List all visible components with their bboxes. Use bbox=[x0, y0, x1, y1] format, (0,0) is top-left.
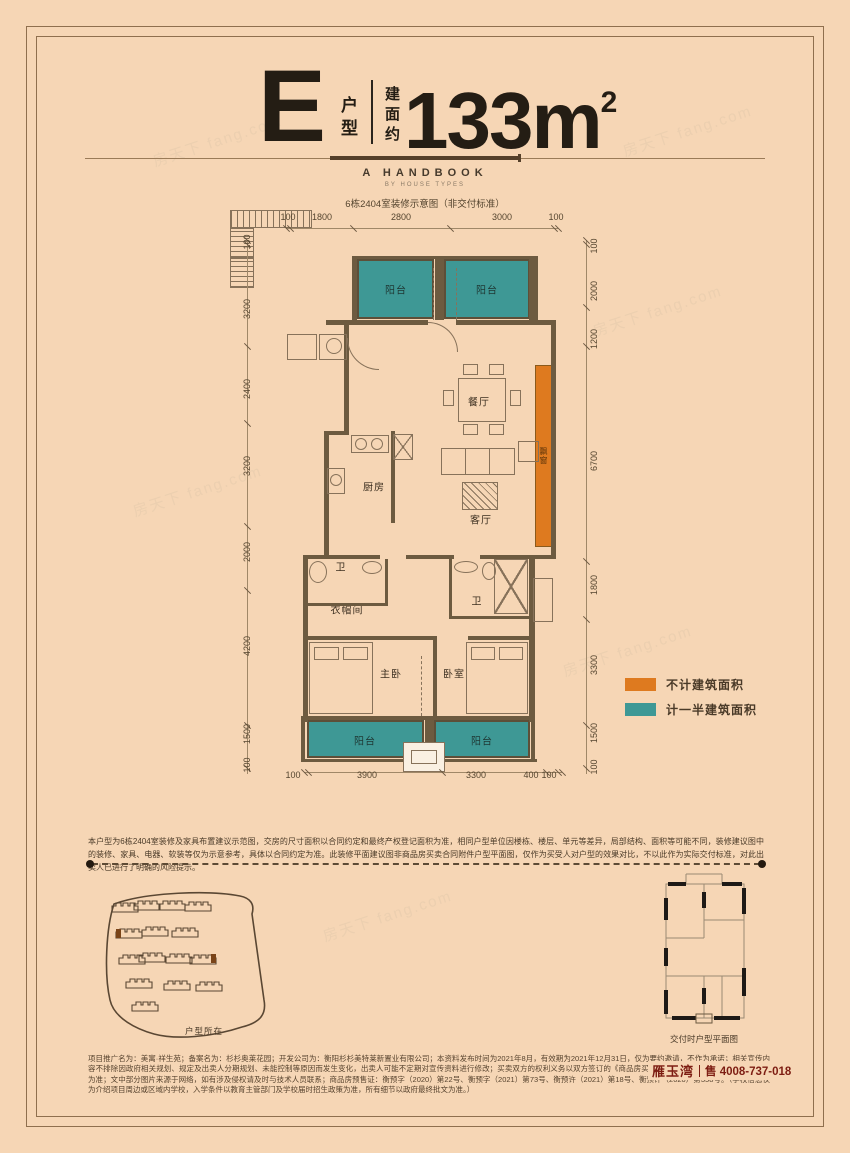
wall-segment bbox=[326, 431, 349, 435]
shower bbox=[494, 559, 528, 614]
area-legend: 不计建筑面积 计一半建筑面积 bbox=[625, 676, 757, 726]
wardrobe bbox=[230, 258, 254, 288]
chair bbox=[463, 424, 478, 435]
dim-label-bottom-4: 100 bbox=[529, 770, 569, 780]
dim-label-left-4: 2000 bbox=[242, 532, 252, 572]
legend-item-half: 计一半建筑面积 bbox=[625, 701, 757, 718]
floor-plan: 飘窗 阳台 阳台 餐厅 厨房 客厅 卫 衣帽间 卫 主卧 卧室 阳台 阳台 10… bbox=[230, 210, 620, 810]
wall-segment bbox=[433, 636, 437, 718]
dim-label-bottom-2: 3300 bbox=[456, 770, 496, 780]
wall-segment bbox=[456, 320, 556, 325]
flue-shaft bbox=[393, 434, 413, 460]
site-boundary bbox=[107, 893, 265, 1037]
armchair bbox=[518, 441, 539, 462]
wall-segment bbox=[531, 716, 535, 762]
dim-label-left-2: 2400 bbox=[242, 369, 252, 409]
dim-label-right-5: 3300 bbox=[589, 645, 599, 685]
sales-phone: 售 4008-737-018 bbox=[705, 1063, 791, 1079]
room-label-bath2: 卫 bbox=[472, 593, 483, 608]
dim-line bbox=[586, 240, 587, 774]
chair bbox=[489, 364, 504, 375]
wall-segment bbox=[328, 555, 380, 559]
pillow bbox=[499, 647, 523, 660]
wall-segment bbox=[305, 636, 435, 640]
dim-label-left-1: 3200 bbox=[242, 289, 252, 329]
wall-segment bbox=[468, 636, 532, 640]
burner-icon bbox=[330, 474, 342, 486]
dim-label-top-4: 100 bbox=[536, 212, 576, 222]
dim-label-top-3: 3000 bbox=[482, 212, 522, 222]
sitemap-label: 户型所在 bbox=[185, 1025, 245, 1037]
wall-segment bbox=[449, 559, 452, 619]
wall-segment bbox=[303, 716, 535, 720]
delivery-plan-sketch bbox=[652, 868, 757, 1030]
dim-label-right-3: 6700 bbox=[589, 441, 599, 481]
sofa-seam bbox=[465, 448, 466, 475]
room-label-balcony: 阳台 bbox=[354, 733, 376, 748]
sofa bbox=[441, 448, 515, 475]
room-label-balcony: 阳台 bbox=[471, 733, 493, 748]
chair bbox=[510, 390, 521, 406]
unit-label: 户 型 bbox=[341, 94, 358, 140]
dim-label-top-1: 1800 bbox=[302, 212, 342, 222]
room-label-balcony: 阳台 bbox=[385, 282, 407, 297]
area-prefix-char: 建 bbox=[385, 85, 400, 105]
area-prefix-char: 约 bbox=[385, 125, 400, 145]
brand-divider bbox=[699, 1065, 700, 1077]
room-label-balcony: 阳台 bbox=[476, 282, 498, 297]
area-value: 133m2 bbox=[404, 60, 615, 164]
ac-unit bbox=[411, 750, 437, 764]
washbasin bbox=[454, 561, 478, 573]
watermark: 房天下 fang.com bbox=[320, 885, 455, 947]
dining-table bbox=[458, 378, 506, 422]
delivery-plan-thick-walls bbox=[666, 884, 744, 1018]
room-label-bedroom: 卧室 bbox=[443, 666, 465, 681]
unit-label-char: 型 bbox=[341, 117, 358, 140]
bay-window-label: 飘窗 bbox=[538, 447, 549, 465]
rug bbox=[462, 482, 498, 510]
burner-icon bbox=[355, 438, 367, 450]
header-rule-cap bbox=[518, 154, 521, 162]
handbook-title: A HANDBOOK bbox=[0, 167, 850, 179]
dim-label-right-1: 2000 bbox=[589, 271, 599, 311]
legend-item-excluded: 不计建筑面积 bbox=[625, 676, 757, 693]
wall-segment bbox=[551, 320, 556, 559]
dim-label-top-2: 2800 bbox=[381, 212, 421, 222]
highlighted-building bbox=[116, 929, 121, 938]
dim-label-left-3: 3200 bbox=[242, 446, 252, 486]
sitemap-sketch bbox=[92, 888, 277, 1038]
wall-segment bbox=[529, 256, 538, 322]
wall-segment bbox=[324, 431, 329, 559]
dim-label-right-4: 1800 bbox=[589, 565, 599, 605]
equipment-platform bbox=[287, 334, 317, 360]
legend-label: 计一半建筑面积 bbox=[666, 701, 757, 718]
toilet bbox=[482, 562, 496, 580]
highlighted-building bbox=[211, 954, 216, 963]
room-label-kitchen: 厨房 bbox=[363, 479, 385, 494]
area-prefix-char: 面 bbox=[385, 105, 400, 125]
legend-label: 不计建筑面积 bbox=[666, 676, 744, 693]
area-exponent: 2 bbox=[601, 86, 616, 119]
unit-label-char: 户 bbox=[341, 94, 358, 117]
wall-segment bbox=[385, 559, 388, 606]
dashed-divider bbox=[92, 863, 760, 865]
wall-segment bbox=[354, 256, 538, 259]
title-divider bbox=[371, 80, 373, 144]
plan-note: 6栋2404室装修示意图（非交付标准） bbox=[0, 196, 850, 210]
toilet bbox=[309, 561, 327, 583]
wall-segment bbox=[301, 716, 305, 762]
dim-label-left-0: 100 bbox=[242, 222, 252, 262]
wall-segment bbox=[406, 555, 454, 559]
wall-segment bbox=[449, 616, 533, 619]
dim-label-right-7: 100 bbox=[589, 747, 599, 787]
equipment-platform bbox=[533, 578, 553, 622]
divider-dot bbox=[758, 860, 766, 868]
dim-label-left-5: 4200 bbox=[242, 626, 252, 666]
entry-door-dashed bbox=[433, 268, 457, 320]
room-label-master: 主卧 bbox=[380, 666, 402, 681]
dim-label-bottom-1: 3900 bbox=[347, 770, 387, 780]
pillow bbox=[343, 647, 368, 660]
dim-label-right-2: 1200 bbox=[589, 319, 599, 359]
chair bbox=[489, 424, 504, 435]
dim-line bbox=[286, 228, 558, 229]
door-arc bbox=[428, 322, 458, 352]
watermark: 房天下 fang.com bbox=[620, 100, 755, 162]
brand-logo: 雁玉湾 bbox=[652, 1061, 694, 1080]
sliding-door-dashed bbox=[421, 656, 422, 716]
room-label-bath1: 卫 bbox=[336, 559, 347, 574]
chair bbox=[463, 364, 478, 375]
brand-block: 雁玉湾 售 4008-737-018 bbox=[648, 1061, 791, 1080]
wall-segment bbox=[305, 603, 387, 606]
area-prefix: 建 面 约 bbox=[385, 85, 400, 145]
burner-icon bbox=[371, 438, 383, 450]
delivery-plan-label: 交付时户型平面图 bbox=[645, 1033, 763, 1045]
divider-dot bbox=[86, 860, 94, 868]
legend-swatch-orange bbox=[625, 678, 656, 691]
room-label-living: 客厅 bbox=[470, 512, 492, 527]
site-buildings bbox=[112, 901, 222, 1011]
dim-label-left-7: 100 bbox=[242, 745, 252, 785]
unit-letter: E bbox=[258, 66, 323, 146]
dim-label-bottom-0: 100 bbox=[273, 770, 313, 780]
floorplan-poster: 房天下 fang.com 房天下 fang.com 房天下 fang.com 房… bbox=[0, 0, 850, 1153]
sofa-seam bbox=[489, 448, 490, 475]
chair bbox=[443, 390, 454, 406]
washbasin bbox=[362, 561, 382, 574]
pillow bbox=[471, 647, 495, 660]
pillow bbox=[314, 647, 339, 660]
burner-icon bbox=[326, 338, 342, 354]
legend-swatch-teal bbox=[625, 703, 656, 716]
wall-segment bbox=[352, 256, 357, 322]
door-arc bbox=[347, 338, 379, 370]
handbook-subtitle: BY HOUSE TYPES bbox=[0, 182, 850, 188]
header-rule-accent bbox=[330, 156, 518, 160]
wall-segment bbox=[326, 320, 428, 325]
dim-label-right-0: 100 bbox=[589, 226, 599, 266]
